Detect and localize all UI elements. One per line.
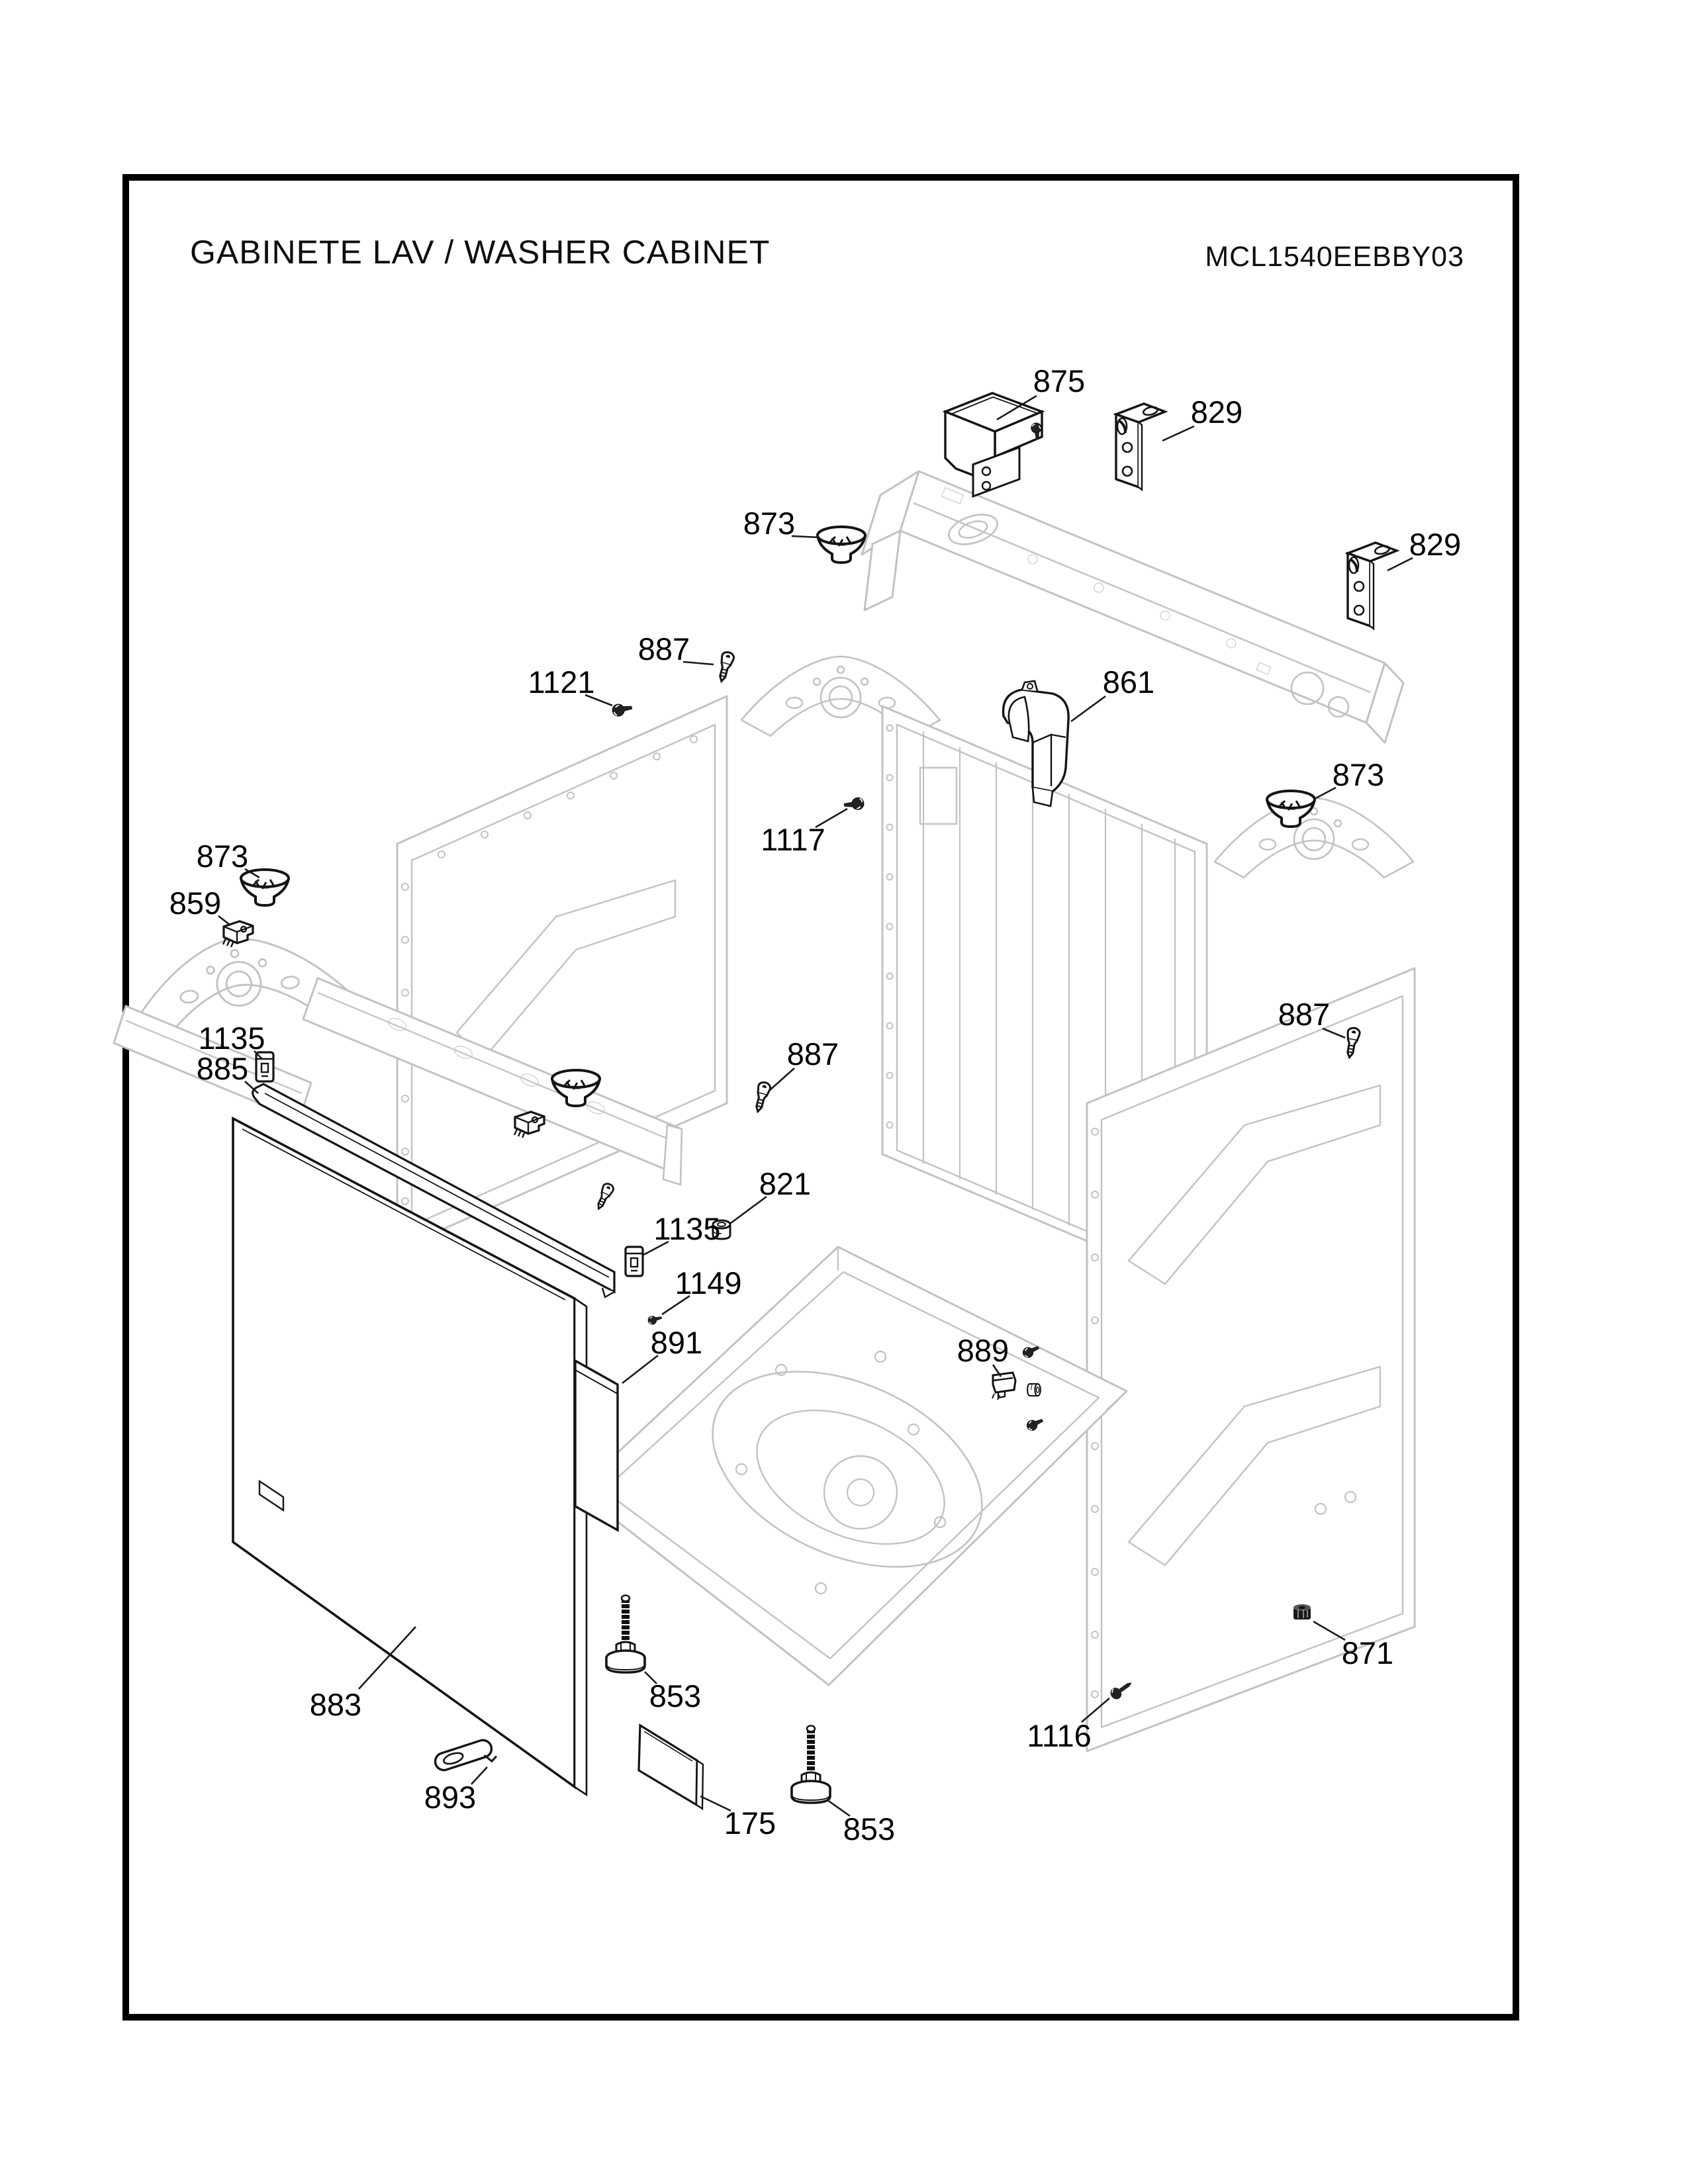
shoulder-screw [594, 1182, 615, 1211]
callout-883-front-panel: 883 [310, 1687, 361, 1722]
part-175-pad [639, 1725, 703, 1809]
diagram-page: GABINETE LAV / WASHER CABINET MCL1540EEB… [0, 0, 1688, 2184]
leveling-leg-853 [606, 1596, 645, 1673]
callout-861-hose-guide: 861 [1103, 664, 1154, 700]
part-875-cover-bracket [945, 393, 1042, 496]
callout-887-shoulder-screw: 887 [638, 631, 690, 666]
callout-853-leveling-leg: 853 [649, 1678, 701, 1713]
base-pan [577, 1247, 1127, 1685]
callout-887-shoulder-screw: 887 [787, 1036, 839, 1071]
leveling-leg-853 [792, 1726, 830, 1803]
nut-871 [1293, 1604, 1311, 1619]
part-883-front-panel [233, 1118, 586, 1795]
callout-873-foot-pad: 873 [743, 506, 795, 541]
callout-175-sound-pad: 175 [724, 1805, 776, 1841]
callout-1121-screw: 1121 [528, 664, 594, 700]
callout-889-clip-stud-kit: 889 [957, 1333, 1009, 1368]
foot-pad-873 [818, 527, 865, 563]
callout-885-front-trim-strip: 885 [197, 1051, 248, 1086]
callout-821-spacer-nut: 821 [759, 1166, 811, 1201]
model-number: MCL1540EEBBY03 [1205, 241, 1464, 273]
callout-829-leader [1162, 426, 1194, 441]
exploded-parts-diagram: GABINETE LAV / WASHER CABINET MCL1540EEB… [0, 0, 1688, 2184]
callout-861-leader [1071, 696, 1105, 721]
screw-1121 [611, 701, 633, 717]
part-893-handle [433, 1737, 497, 1778]
screw-1149 [647, 1313, 663, 1326]
shoulder-screw-887 [716, 651, 735, 683]
callout-891-shipping-support: 891 [651, 1325, 702, 1360]
part-891-shipping-support [575, 1361, 618, 1530]
page-title: GABINETE LAV / WASHER CABINET [190, 234, 770, 271]
callout-887-leader [769, 1068, 794, 1091]
callout-853-leveling-leg: 853 [843, 1811, 895, 1846]
stud-889 [1027, 1384, 1041, 1396]
shoulder-screw-887 [752, 1081, 771, 1113]
callout-875-top-cover-bracket: 875 [1033, 363, 1085, 398]
callout-1135-retainer-clip: 1135 [653, 1211, 720, 1246]
foot-pad-873 [241, 870, 289, 905]
callout-873-foot-pad: 873 [197, 839, 248, 874]
callout-829-corner-brace-left: 829 [1191, 394, 1243, 430]
callout-873-foot-pad: 873 [1333, 757, 1384, 792]
callout-893-pull-handle: 893 [424, 1780, 476, 1815]
callout-1116-screw: 1116 [1027, 1718, 1092, 1753]
retainer-clip-1135 [626, 1247, 643, 1276]
rear-top-brace [862, 471, 1403, 743]
callout-871-nut: 871 [1342, 1635, 1393, 1670]
callout-859-retainer-clip: 859 [169, 886, 221, 921]
callout-1149-screw: 1149 [675, 1265, 741, 1300]
part-829-bracket [1116, 404, 1165, 490]
right-side-panel [1087, 968, 1415, 1751]
callout-829-corner-brace-right: 829 [1409, 527, 1461, 562]
right-corner-gusset [1215, 798, 1413, 878]
part-829-bracket [1348, 543, 1397, 629]
callout-873-leader [792, 536, 820, 537]
callout-887-shoulder-screw: 887 [1278, 997, 1330, 1032]
callout-1117-screw: 1117 [761, 822, 825, 857]
